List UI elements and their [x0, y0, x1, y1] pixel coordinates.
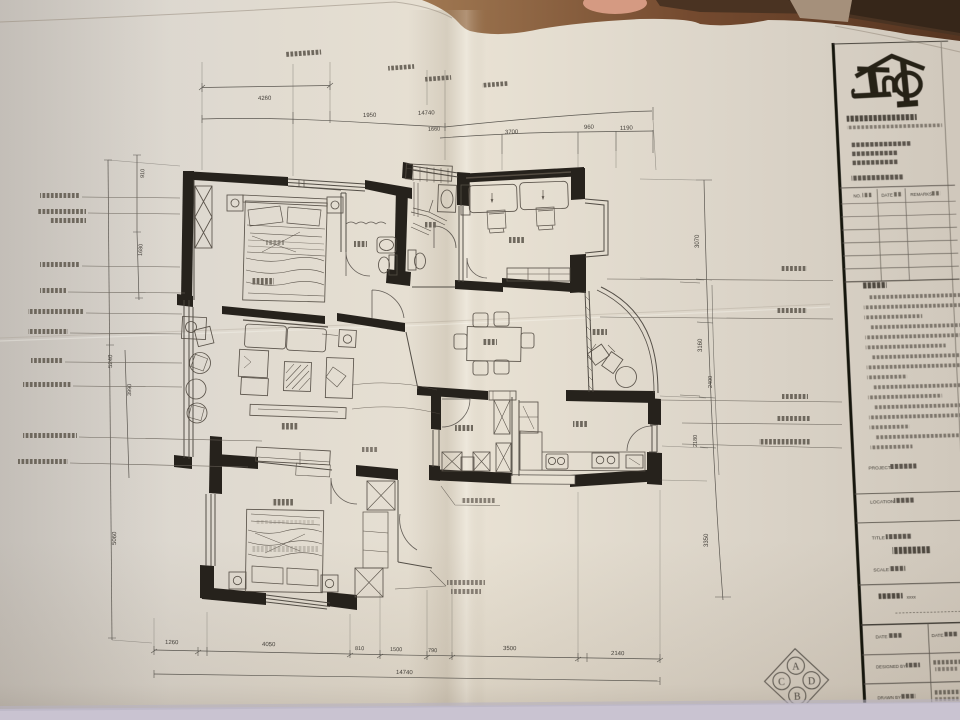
svg-text:4050: 4050 — [262, 642, 276, 648]
svg-text:SCALE: SCALE — [873, 567, 889, 573]
svg-text:A: A — [792, 662, 801, 673]
svg-text:3070: 3070 — [695, 234, 701, 248]
svg-text:1680: 1680 — [138, 244, 144, 256]
svg-text:910: 910 — [140, 169, 146, 178]
svg-text:DESIGNED BY: DESIGNED BY — [876, 664, 906, 670]
svg-text:3350: 3350 — [704, 533, 710, 547]
svg-text:790: 790 — [428, 648, 437, 654]
svg-text:xxxx: xxxx — [907, 595, 917, 600]
svg-text:960: 960 — [584, 125, 595, 131]
svg-text:2180: 2180 — [693, 435, 699, 447]
svg-text:TITLE: TITLE — [872, 535, 885, 541]
svg-text:2140: 2140 — [611, 651, 625, 657]
svg-text:D: D — [808, 676, 816, 687]
svg-text:LOCATION: LOCATION — [870, 499, 895, 506]
svg-text:3160: 3160 — [698, 338, 704, 352]
svg-text:3500: 3500 — [503, 646, 517, 652]
svg-text:3990: 3990 — [127, 384, 133, 396]
svg-text:1260: 1260 — [165, 640, 179, 646]
svg-text:5240: 5240 — [108, 354, 114, 368]
svg-text:DATE: DATE — [875, 634, 887, 639]
svg-text:NO.: NO. — [853, 193, 861, 198]
svg-text:PROJECT: PROJECT — [868, 465, 891, 472]
svg-text:14740: 14740 — [396, 670, 413, 676]
svg-text:DATE: DATE — [881, 193, 893, 198]
svg-text:2400: 2400 — [708, 376, 714, 388]
svg-text:1500: 1500 — [390, 647, 402, 653]
svg-text:1190: 1190 — [620, 126, 634, 132]
svg-text:1660: 1660 — [428, 127, 440, 133]
svg-text:1950: 1950 — [363, 113, 377, 119]
svg-text:REMARKS: REMARKS — [910, 192, 932, 198]
svg-text:DATE: DATE — [931, 633, 943, 638]
svg-text:4260: 4260 — [258, 96, 272, 102]
svg-text:14740: 14740 — [418, 110, 436, 117]
svg-text:C: C — [778, 677, 786, 688]
svg-text:5060: 5060 — [112, 531, 118, 545]
svg-text:3700: 3700 — [505, 130, 519, 136]
svg-text:810: 810 — [355, 646, 364, 652]
